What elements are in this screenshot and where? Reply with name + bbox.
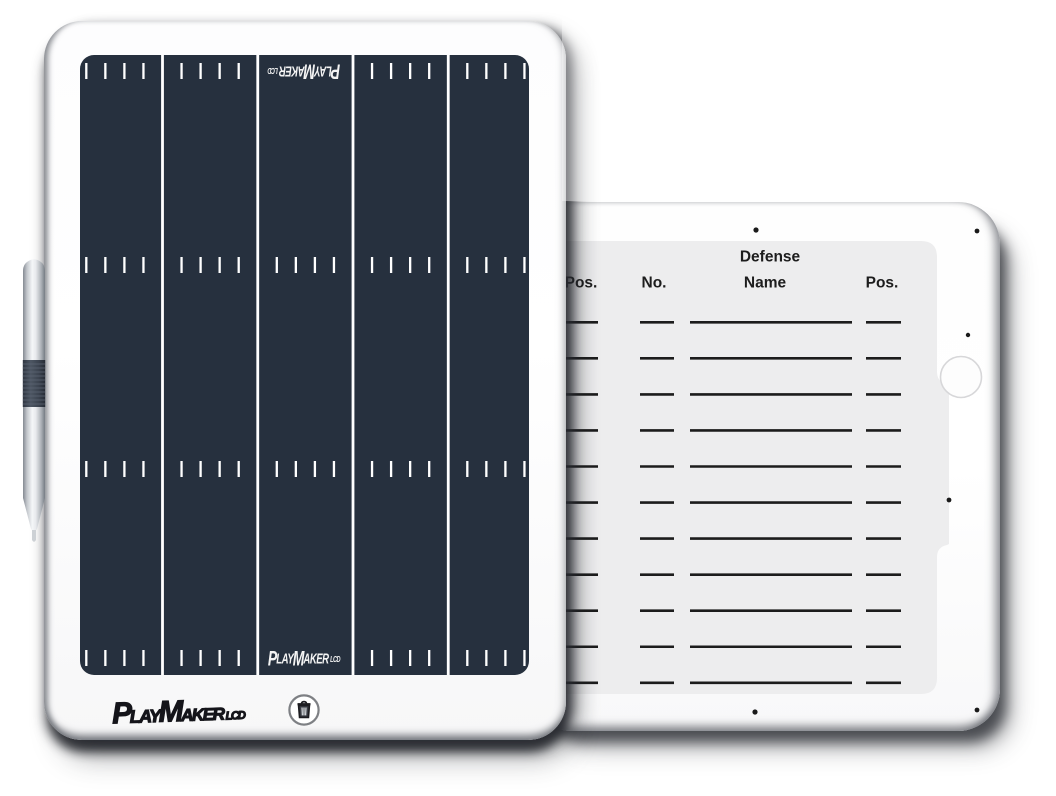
svg-text:No.: No. [642,274,667,291]
svg-text:Pos.: Pos. [565,274,598,291]
svg-text:Name: Name [744,274,787,291]
svg-text:Pos.: Pos. [866,274,899,291]
svg-text:Defense: Defense [740,248,801,265]
svg-text:PLAYMAKERLCD: PLAYMAKERLCD [112,693,246,731]
